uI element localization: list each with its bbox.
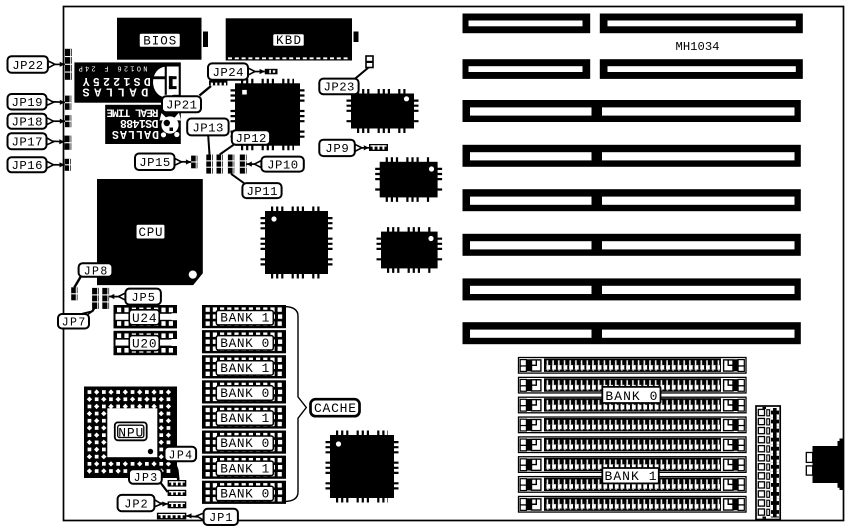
svg-text:JP17: JP17	[12, 136, 43, 150]
svg-text:JP24: JP24	[213, 66, 244, 80]
svg-text:BANK 0: BANK 0	[220, 436, 269, 451]
svg-text:BANK 0: BANK 0	[220, 486, 269, 501]
svg-text:JP16: JP16	[12, 159, 43, 173]
svg-text:JP10: JP10	[267, 158, 298, 172]
svg-text:JP7: JP7	[62, 317, 86, 330]
svg-text:JP23: JP23	[323, 81, 354, 95]
svg-text:NPU: NPU	[118, 425, 143, 440]
svg-text:NO126 F 24P: NO126 F 24P	[79, 63, 148, 71]
svg-text:BANK 0: BANK 0	[220, 336, 269, 351]
svg-text:CACHE: CACHE	[314, 401, 356, 416]
svg-text:CPU: CPU	[139, 226, 163, 240]
svg-text:MH1034: MH1034	[676, 40, 720, 54]
svg-text:JP12: JP12	[235, 132, 266, 146]
svg-text:JP1: JP1	[209, 511, 233, 525]
svg-text:JP13: JP13	[192, 121, 223, 135]
svg-text:JP11: JP11	[247, 185, 278, 199]
svg-text:BANK 1: BANK 1	[220, 311, 269, 326]
svg-text:BANK 0: BANK 0	[220, 386, 269, 401]
svg-text:JP21: JP21	[166, 99, 197, 113]
svg-text:JP4: JP4	[169, 449, 193, 462]
svg-text:JP5: JP5	[131, 291, 155, 305]
svg-text:BANK 1: BANK 1	[220, 361, 269, 376]
svg-text:U24: U24	[132, 311, 157, 326]
svg-text:REAL TIME: REAL TIME	[106, 105, 158, 117]
svg-text:BANK 1: BANK 1	[220, 411, 269, 426]
svg-text:JP19: JP19	[12, 96, 43, 110]
svg-text:JP15: JP15	[139, 156, 170, 170]
svg-text:JP8: JP8	[84, 265, 108, 278]
svg-text:JP3: JP3	[134, 472, 158, 485]
svg-text:JP9: JP9	[325, 142, 349, 156]
svg-text:JP22: JP22	[12, 59, 43, 73]
svg-text:BIOS: BIOS	[143, 34, 176, 48]
svg-text:U20: U20	[132, 337, 157, 352]
svg-text:JP18: JP18	[12, 116, 43, 130]
svg-text:JP2: JP2	[124, 497, 148, 511]
svg-text:BANK 0: BANK 0	[605, 389, 657, 404]
svg-text:KBD: KBD	[276, 34, 301, 48]
svg-text:BANK 1: BANK 1	[220, 461, 269, 476]
